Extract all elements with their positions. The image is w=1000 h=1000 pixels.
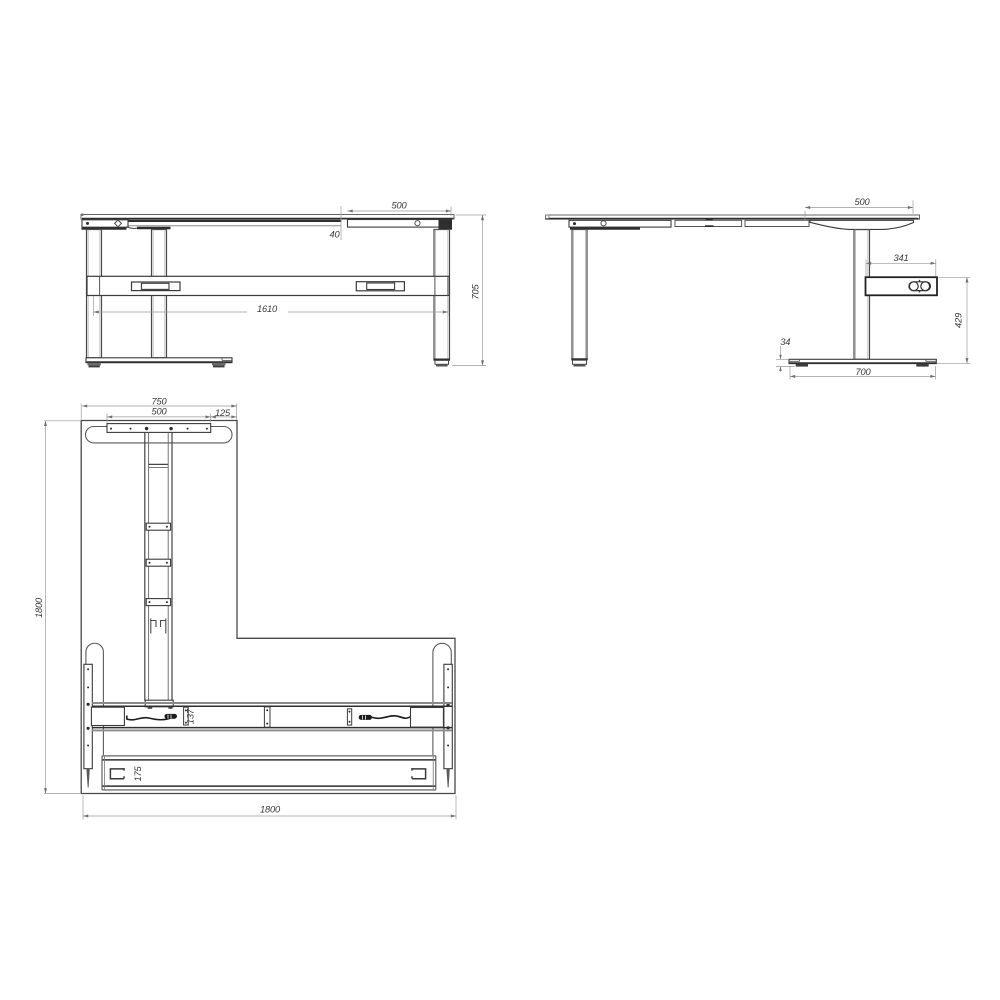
svg-text:705: 705 xyxy=(470,284,480,300)
svg-text:125: 125 xyxy=(215,408,231,418)
svg-text:175: 175 xyxy=(133,766,143,782)
svg-text:34: 34 xyxy=(780,337,790,347)
svg-text:500: 500 xyxy=(152,407,168,417)
svg-text:700: 700 xyxy=(856,367,872,377)
svg-text:137: 137 xyxy=(186,708,196,724)
svg-text:40: 40 xyxy=(330,230,341,240)
svg-text:500: 500 xyxy=(855,197,871,207)
svg-text:1800: 1800 xyxy=(260,805,281,815)
svg-text:500: 500 xyxy=(392,201,408,211)
svg-text:429: 429 xyxy=(953,313,963,328)
svg-text:1800: 1800 xyxy=(34,597,44,618)
svg-text:1610: 1610 xyxy=(257,304,278,314)
svg-text:341: 341 xyxy=(894,253,909,263)
svg-text:750: 750 xyxy=(152,396,168,406)
